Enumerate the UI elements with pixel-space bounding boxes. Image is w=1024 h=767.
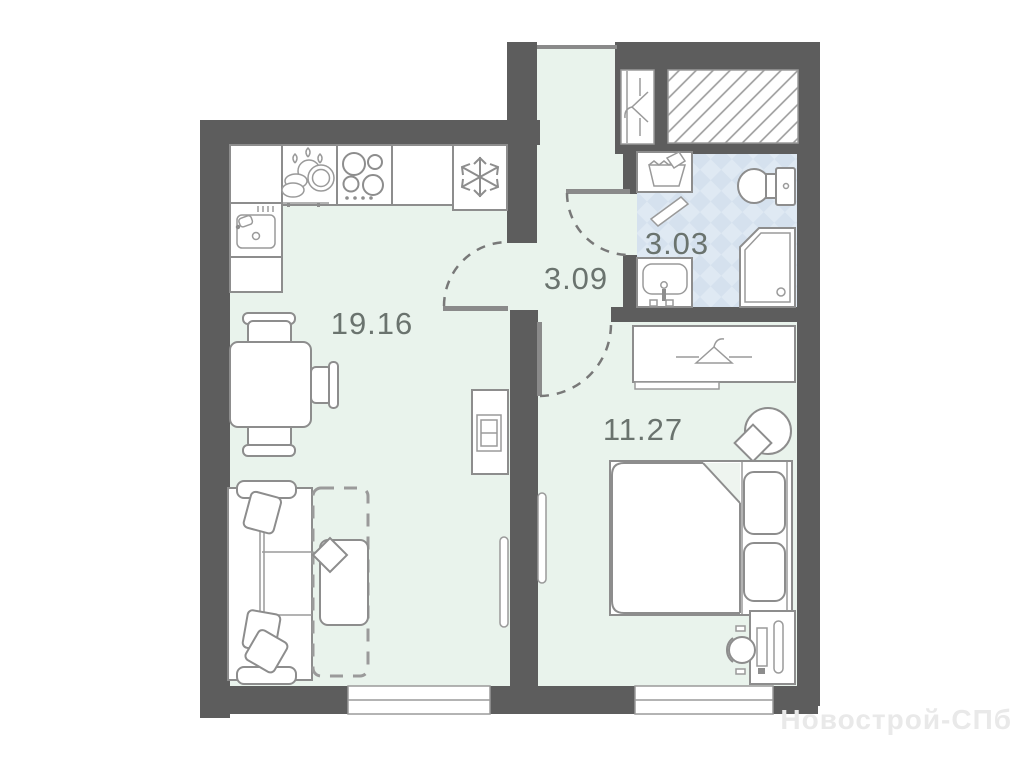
living-room-area-label: 19.16 (331, 306, 414, 341)
wall-bedroom-north (611, 307, 820, 322)
kitchen-cabinet (230, 257, 282, 292)
wall-left (200, 120, 230, 718)
bathroom-door-leaf (566, 189, 630, 194)
bedroom-door-leaf (537, 322, 542, 396)
bedroom-area-label: 11.27 (603, 412, 683, 447)
closet-body (621, 70, 654, 144)
tv-console (472, 390, 508, 474)
fridge (453, 145, 507, 210)
living-room-window (348, 686, 490, 714)
entrance-door (537, 45, 617, 49)
shower-icon (740, 228, 795, 307)
bathroom-area-label: 3.03 (645, 226, 709, 261)
washbasin-icon (637, 258, 692, 307)
bedroom-window (635, 686, 773, 714)
sofa (228, 481, 312, 684)
wall-mid-lower (510, 310, 538, 688)
wardrobe-shelf (635, 382, 719, 389)
ventilation-shaft-hatch (668, 70, 798, 143)
wall-mid-column (507, 42, 537, 243)
bedroom-wardrobe (633, 326, 795, 389)
kitchen-counter (230, 145, 453, 205)
pillow (744, 472, 785, 534)
watermark: Новострой-СПб (780, 704, 1012, 735)
living-door-leaf (443, 306, 508, 311)
chair-back (329, 362, 338, 408)
bed (610, 461, 792, 615)
radiator-bedroom (538, 493, 546, 583)
floor-plan-drawing: 19.16 3.09 3.03 11.27 Новострой-СПб (0, 0, 1024, 767)
hallway-area-label: 3.09 (544, 261, 608, 296)
floor-plan-page: 19.16 3.09 3.03 11.27 Новострой-СПб (0, 0, 1024, 767)
wall-bathroom-west-lower (623, 255, 637, 309)
radiator-living (500, 537, 508, 627)
chair-back (243, 445, 295, 456)
living-doorway-floor (507, 243, 537, 310)
pillow (744, 543, 785, 601)
desk-chair (729, 637, 755, 663)
wall-top (200, 120, 540, 145)
wall-bathroom-west-upper (623, 152, 637, 194)
kitchen-sink-unit (230, 203, 282, 292)
dining-table (230, 342, 311, 427)
washing-machine (637, 152, 692, 192)
coffee-table (313, 538, 368, 625)
wall-right (797, 42, 820, 706)
entry-closet (621, 70, 654, 144)
